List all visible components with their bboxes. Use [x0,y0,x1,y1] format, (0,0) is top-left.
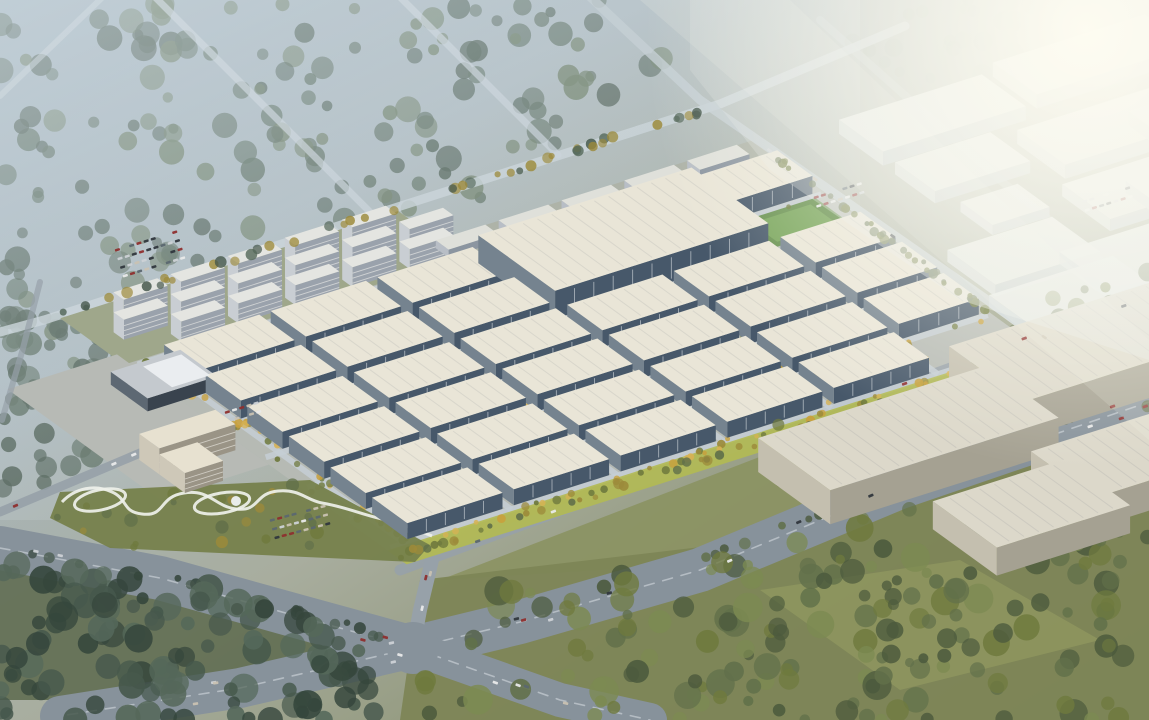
aerial-render-image [0,0,1149,720]
industrial-park-aerial-scene [0,0,1149,720]
